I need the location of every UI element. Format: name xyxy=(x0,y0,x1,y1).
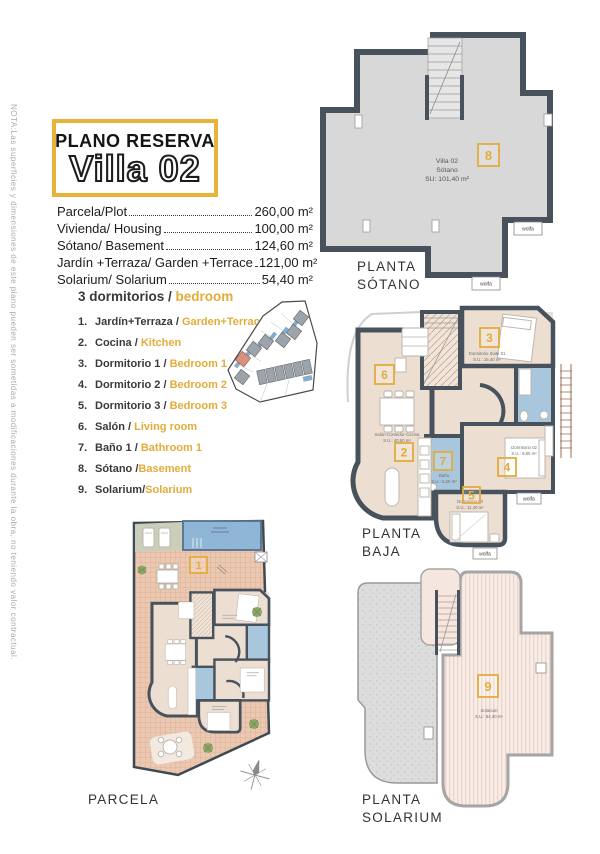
surface-row: Jardín +Terraza/ Garden +Terrace121,00 m… xyxy=(57,255,313,272)
svg-text:S.U.: 40,60 m²: S.U.: 40,60 m² xyxy=(383,438,411,443)
svg-text:5: 5 xyxy=(468,489,475,503)
surface-label: Vivienda/ Housing xyxy=(57,221,162,236)
plan-caption: PLANTA xyxy=(357,259,416,274)
garden-dining-set xyxy=(157,564,178,589)
ac-unit: wolfa xyxy=(472,277,500,290)
plan-caption: SOLARIUM xyxy=(362,810,443,825)
svg-text:S.U.: 9,80 m²: S.U.: 9,80 m² xyxy=(511,451,537,456)
plan-parcela: 1 xyxy=(75,512,340,812)
surface-row: Sótano/ Basement124,60 m² xyxy=(57,238,313,255)
ac-unit: wolfa xyxy=(473,548,497,559)
surface-value: 54,40 m² xyxy=(262,272,313,287)
surface-label: Parcela/Plot xyxy=(57,204,127,219)
title-box: PLANO RESERVA Villa 02 xyxy=(52,119,218,197)
surface-value: 100,00 m² xyxy=(254,221,313,236)
surface-value: 260,00 m² xyxy=(254,204,313,219)
roof-vent xyxy=(536,663,546,673)
plan-caption: PLANTA xyxy=(362,792,421,807)
svg-text:Baño: Baño xyxy=(439,473,450,478)
surface-row: Vivienda/ Housing100,00 m² xyxy=(57,221,313,238)
surface-value: 121,00 m² xyxy=(259,255,318,270)
surface-row: Solarium/ Solarium54,40 m² xyxy=(57,272,313,289)
compass-rose xyxy=(237,757,274,794)
parcela-tag: 1 xyxy=(190,557,207,573)
bedroom-02: Dormitorio 02 S.U.: 9,80 m² 4 xyxy=(462,424,553,492)
roof-vent xyxy=(424,727,433,739)
legend-item: 8.Sótano /Basement xyxy=(78,463,248,475)
svg-text:S.U.: 15,40 m²: S.U.: 15,40 m² xyxy=(473,357,501,362)
ac-unit: wolfa xyxy=(514,222,542,235)
plan-sotano: 8 Villa 02 Sótano SU: 101,40 m² wolfa wo… xyxy=(318,22,600,304)
svg-text:Dormitorio Suite 01: Dormitorio Suite 01 xyxy=(469,351,506,356)
plan-caption: SÓTANO xyxy=(357,277,421,292)
plan-sheet: NOTA:Las superficies y dimensiones de es… xyxy=(0,0,600,854)
legend-item: 6.Salón / Living room xyxy=(78,421,248,433)
svg-text:2: 2 xyxy=(401,446,408,460)
dotted-leader xyxy=(129,215,252,216)
dotted-leader xyxy=(164,232,253,233)
svg-text:8: 8 xyxy=(485,148,492,163)
svg-text:1: 1 xyxy=(195,560,201,572)
svg-text:wolfa: wolfa xyxy=(480,282,492,288)
svg-text:Villa 02: Villa 02 xyxy=(436,158,458,165)
svg-text:3: 3 xyxy=(486,331,493,345)
surface-label: Solarium/ Solarium xyxy=(57,272,167,287)
svg-text:S.U.: 11,40 m²: S.U.: 11,40 m² xyxy=(456,505,484,510)
dotted-leader xyxy=(169,283,260,284)
svg-text:wolfa: wolfa xyxy=(479,552,491,558)
svg-text:wolfa: wolfa xyxy=(523,497,535,503)
plan-baja: 3 Dormitorio Suite 01 S.U.: 15,40 m² Dis… xyxy=(340,298,600,590)
stair-bulkhead xyxy=(421,569,460,655)
pergola-trellis xyxy=(560,364,572,458)
svg-text:9: 9 xyxy=(484,679,491,694)
bedroom-suite: 3 Dormitorio Suite 01 S.U.: 15,40 m² xyxy=(462,308,553,366)
svg-text:S.U.: 54,40 m²: S.U.: 54,40 m² xyxy=(475,714,503,719)
plan-caption: PLANTA xyxy=(362,526,421,541)
site-plan xyxy=(215,298,330,422)
disclaimer-note: NOTA:Las superficies y dimensiones de es… xyxy=(4,104,18,804)
svg-text:wolfa: wolfa xyxy=(522,227,534,233)
dotted-leader xyxy=(166,249,252,250)
surface-row: Parcela/Plot260,00 m² xyxy=(57,204,313,221)
svg-text:Dormitorio 02: Dormitorio 02 xyxy=(511,445,537,450)
swimming-pool xyxy=(183,521,261,550)
svg-text:6: 6 xyxy=(381,368,388,382)
surface-label: Sótano/ Basement xyxy=(57,238,164,253)
svg-text:SU: 101,40 m²: SU: 101,40 m² xyxy=(425,176,470,183)
plan-caption: BAJA xyxy=(362,544,401,559)
basement-room-tag: 8 xyxy=(478,144,499,166)
bathroom-suite xyxy=(516,366,553,428)
plan-caption: PARCELA xyxy=(88,792,159,807)
bedroom-03: Dormitorio 03 S.U.: 11,40 m² 5 xyxy=(436,487,505,545)
plan-solarium: 9 Solarium S.U.: 54,40 m² PLANTA SOLARIU… xyxy=(340,560,600,844)
svg-text:Solarium: Solarium xyxy=(481,708,498,713)
svg-text:S.U.: 5,20 m²: S.U.: 5,20 m² xyxy=(431,479,457,484)
dining-table: Salón-Comedor-Cocina S.U.: 40,60 m² xyxy=(375,391,421,443)
legend-item: 7.Baño 1 / Bathroom 1 xyxy=(78,442,248,454)
svg-text:Sótano: Sótano xyxy=(436,167,458,174)
svg-text:7: 7 xyxy=(440,455,447,469)
legend-item: 9.Solarium/Solarium xyxy=(78,484,248,496)
svg-text:Salón-Comedor-Cocina: Salón-Comedor-Cocina xyxy=(375,432,421,437)
page-title: Villa 02 xyxy=(69,153,200,185)
ac-unit: wolfa xyxy=(517,493,541,504)
dotted-leader xyxy=(255,266,257,267)
pool-skimmer xyxy=(255,552,267,562)
svg-text:4: 4 xyxy=(504,461,511,475)
basement-stairs xyxy=(425,38,464,120)
surface-value: 124,60 m² xyxy=(254,238,313,253)
surface-label: Jardín +Terraza/ Garden +Terrace xyxy=(57,255,253,270)
surface-table: Parcela/Plot260,00 m² Vivienda/ Housing1… xyxy=(57,204,313,289)
